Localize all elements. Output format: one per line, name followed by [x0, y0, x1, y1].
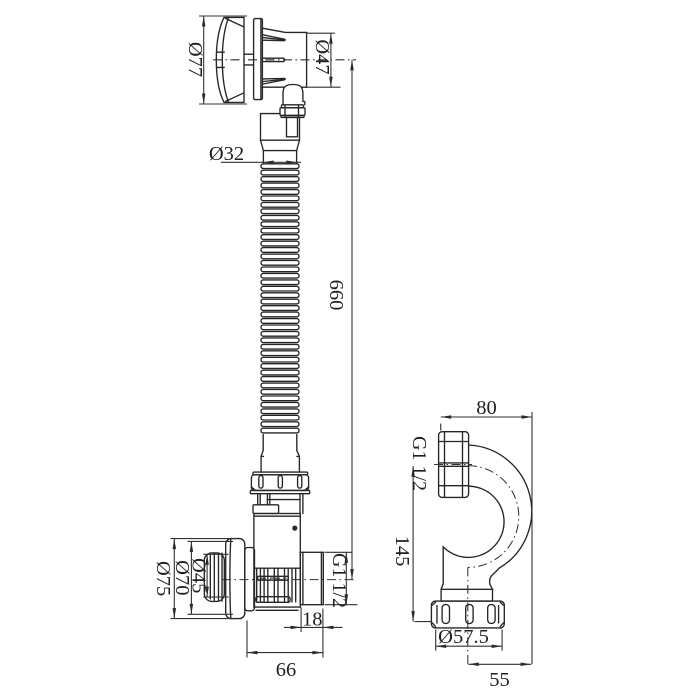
svg-text:145: 145 [391, 536, 413, 567]
svg-text:Ø57.5: Ø57.5 [438, 626, 489, 648]
svg-text:Ø32: Ø32 [209, 143, 244, 165]
svg-text:Ø47: Ø47 [311, 39, 333, 74]
svg-text:G1 1/2: G1 1/2 [408, 436, 430, 491]
svg-text:660: 660 [325, 280, 347, 311]
svg-text:Ø45: Ø45 [188, 558, 210, 593]
svg-text:18: 18 [302, 608, 323, 630]
svg-text:55: 55 [489, 669, 510, 691]
svg-text:66: 66 [276, 659, 297, 681]
svg-text:Ø77: Ø77 [184, 42, 206, 77]
svg-text:G1 1/2: G1 1/2 [328, 553, 350, 608]
svg-text:80: 80 [476, 397, 497, 419]
svg-text:Ø75: Ø75 [152, 561, 174, 596]
